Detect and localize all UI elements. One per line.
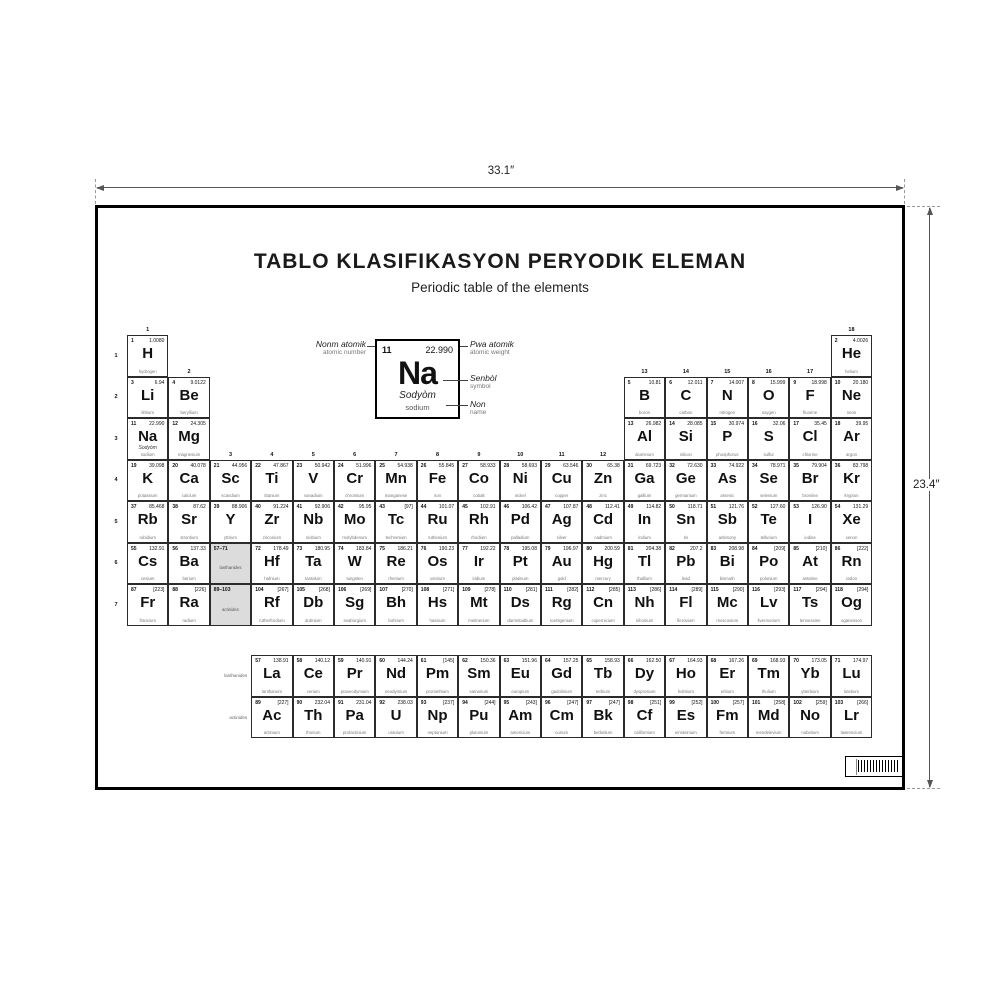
element-name: holmium [666, 689, 705, 694]
atomic-weight: 55.845 [439, 463, 454, 469]
atomic-weight: 28.085 [687, 421, 702, 427]
element-cell-kr: 3683.798Krkrypton [831, 460, 872, 502]
element-name: iridium [459, 576, 498, 581]
atomic-weight: 151.96 [522, 658, 537, 664]
element-cell-top: 67164.93 [666, 657, 705, 664]
atomic-number: 110 [504, 587, 512, 593]
atomic-number: 35 [793, 463, 799, 469]
element-cell-top: 101[258] [749, 699, 788, 706]
element-cell-top: 59140.91 [335, 657, 374, 664]
element-name: technetium [376, 535, 415, 540]
element-symbol: Hs [418, 594, 457, 611]
atomic-number: 13 [628, 421, 634, 427]
element-symbol: Dy [625, 665, 664, 682]
atomic-weight: 196.97 [563, 546, 578, 552]
atomic-weight: 118.71 [688, 504, 703, 510]
element-cell-ts: 117[294]Tstennessine [789, 584, 830, 626]
element-name: bismuth [708, 576, 747, 581]
element-cell-ga: 3169.723Gagallium [624, 460, 665, 502]
atomic-number: 40 [255, 504, 261, 510]
element-cell-top: 91231.04 [335, 699, 374, 706]
element-symbol: Fl [666, 594, 705, 611]
element-cell-os: 76190.23Ososmium [417, 543, 458, 585]
atomic-number: 75 [379, 546, 385, 552]
element-symbol: Li [128, 387, 167, 404]
atomic-weight: [247] [609, 700, 620, 706]
element-name: lawrencium [832, 730, 871, 735]
element-cell-au: 79196.97Augold [541, 543, 582, 585]
element-symbol: No [790, 707, 829, 724]
atomic-weight: 22.990 [149, 421, 164, 427]
atomic-weight: 207.2 [690, 546, 703, 552]
atomic-weight: 114.82 [646, 504, 661, 510]
element-cell-top: 1632.06 [749, 420, 788, 427]
atomic-weight: 121.76 [729, 504, 744, 510]
element-name: gadolinium [542, 689, 581, 694]
element-cell-lv: 116[293]Lvlivermorium [748, 584, 789, 626]
element-cell-top: 98[251] [625, 699, 664, 706]
atomic-number: 34 [752, 463, 758, 469]
group-number-1: 1 [127, 326, 168, 334]
element-cell-ag: 47107.87Agsilver [541, 501, 582, 543]
atomic-weight: 35.45 [814, 421, 827, 427]
element-symbol: Y [211, 511, 250, 528]
element-cell-top: 57138.91 [252, 657, 291, 664]
atomic-weight: [286] [650, 587, 661, 593]
atomic-weight: 178.49 [273, 546, 288, 552]
element-cell-top: 94[244] [459, 699, 498, 706]
element-cell-cu: 2963.546Cucopper [541, 460, 582, 502]
element-name: sodium [128, 452, 167, 457]
element-symbol: C [666, 387, 705, 404]
element-cell-top: 2963.546 [542, 462, 581, 469]
element-symbol: Db [294, 594, 333, 611]
element-cell-cl: 1735.45Clchlorine [789, 418, 830, 460]
element-cell-top: 93[237] [418, 699, 457, 706]
element-cell-cf: 98[251]Cfcalifornium [624, 697, 665, 739]
element-cell-c: 612.011Ccarbon [665, 377, 706, 419]
element-cell-s: 1632.06Ssulfur [748, 418, 789, 460]
element-cell-ni: 2858.693Ninickel [500, 460, 541, 502]
element-cell-top: 108[271] [418, 586, 457, 593]
group-number-5: 5 [293, 451, 334, 459]
period-number-2: 2 [110, 377, 122, 419]
element-cell-he: 24.0026Hehelium [831, 335, 872, 377]
element-name: helium [832, 369, 871, 374]
element-cell-top: 1735.45 [790, 420, 829, 427]
atomic-number: 4 [172, 380, 175, 386]
element-cell-at: 85[210]Atastatine [789, 543, 830, 585]
element-cell-la: 57138.91Lalanthanum [251, 655, 292, 697]
element-name: iodine [790, 535, 829, 540]
element-symbol: Pb [666, 553, 705, 570]
atomic-number: 89 [255, 700, 261, 706]
atomic-weight: 30.974 [729, 421, 744, 427]
element-symbol: Zr [252, 511, 291, 528]
element-symbol: Cn [583, 594, 622, 611]
element-cell-top: 66162.50 [625, 657, 664, 664]
element-symbol: Cu [542, 470, 581, 487]
atomic-weight: [278] [484, 587, 495, 593]
element-name: copper [542, 493, 581, 498]
element-name: rhenium [376, 576, 415, 581]
atomic-number: 88 [172, 587, 178, 593]
element-cell-sn: 50118.71Sntin [665, 501, 706, 543]
element-cell-top: 4295.95 [335, 503, 374, 510]
element-name: protactinium [335, 730, 374, 735]
element-cell-cr: 2451.996Crchromium [334, 460, 375, 502]
element-name: dubnium [294, 618, 333, 623]
atomic-number: 108 [421, 587, 429, 593]
element-symbol: Pd [501, 511, 540, 528]
element-symbol: Cf [625, 707, 664, 724]
arrow-down-icon [927, 780, 933, 788]
element-cell-i: 53126.90Iiodine [789, 501, 830, 543]
element-cell-yb: 70173.05Ybytterbium [789, 655, 830, 697]
atomic-weight: 158.93 [604, 658, 619, 664]
element-cell-mn: 2554.938Mnmanganese [375, 460, 416, 502]
group-number-6: 6 [334, 451, 375, 459]
atomic-weight: 87.62 [193, 504, 206, 510]
element-cell-top: 46106.42 [501, 503, 540, 510]
element-cell-top: 102[259] [790, 699, 829, 706]
element-cell-top: 3374.922 [708, 462, 747, 469]
element-cell-top: 2040.078 [169, 462, 208, 469]
element-cell-es: 99[252]Eseinsteinium [665, 697, 706, 739]
atomic-weight: 63.546 [563, 463, 578, 469]
element-name: scandium [211, 493, 250, 498]
atomic-weight: [210] [816, 546, 827, 552]
atomic-weight: 102.91 [480, 504, 495, 510]
height-dimension-label: 23.4″ [910, 479, 942, 491]
element-symbol: La [252, 665, 291, 682]
atomic-number: 17 [793, 421, 799, 427]
element-name: beryllium [169, 410, 208, 415]
atomic-number: 24 [338, 463, 344, 469]
element-name: ruthenium [418, 535, 457, 540]
element-name: carbon [666, 410, 705, 415]
element-cell-top: 51121.76 [708, 503, 747, 510]
element-cell-pb: 82207.2Pblead [665, 543, 706, 585]
element-name: plutonium [459, 730, 498, 735]
atomic-weight: [294] [857, 587, 868, 593]
element-cell-gd: 64157.25Gdgadolinium [541, 655, 582, 697]
group-number-17: 17 [789, 368, 830, 376]
element-name: strontium [169, 535, 208, 540]
extension-line-right-bottom [907, 788, 940, 789]
element-cell-se: 3478.971Seselenium [748, 460, 789, 502]
atomic-weight: 92.906 [315, 504, 330, 510]
atomic-number: 71 [835, 658, 841, 664]
element-cell-tl: 81204.38Tlthallium [624, 543, 665, 585]
atomic-number: 69 [752, 658, 758, 664]
element-cell-ds: 110[281]Dsdarmstadtium [500, 584, 541, 626]
element-cell-sc: 2144.956Scscandium [210, 460, 251, 502]
atomic-weight: [270] [402, 587, 413, 593]
element-symbol: Cm [542, 707, 581, 724]
period-number-6: 6 [110, 543, 122, 585]
element-cell-no: 102[259]Nonobelium [789, 697, 830, 739]
element-name: platinum [501, 576, 540, 581]
group-number-13: 13 [624, 368, 665, 376]
element-cell-top: 64157.25 [542, 657, 581, 664]
element-name: magnesium [169, 452, 208, 457]
atomic-number: 36 [835, 463, 841, 469]
element-cell-top: 117[294] [790, 586, 829, 593]
atomic-weight: 192.22 [480, 546, 495, 552]
element-name: molybdenum [335, 535, 374, 540]
element-symbol: Pa [335, 707, 374, 724]
atomic-weight: [267] [277, 587, 288, 593]
atomic-number: 49 [628, 504, 634, 510]
element-cell-top: 84[209] [749, 545, 788, 552]
element-cell-pm: 61[145]Pmpromethium [417, 655, 458, 697]
element-symbol: Ir [459, 553, 498, 570]
atomic-number: 27 [462, 463, 468, 469]
atomic-weight: 54.938 [397, 463, 412, 469]
element-cell-top: 118[294] [832, 586, 871, 593]
element-cell-top: 78195.08 [501, 545, 540, 552]
element-name: osmium [418, 576, 457, 581]
width-dimension-label: 33.1″ [468, 165, 534, 177]
atomic-weight: [289] [691, 587, 702, 593]
element-cell-top: 52127.60 [749, 503, 788, 510]
arrow-right-icon [896, 185, 904, 191]
atomic-weight: 106.42 [522, 504, 537, 510]
atomic-number: 103 [835, 700, 843, 706]
element-cell-top: 107[270] [376, 586, 415, 593]
element-symbol: Ds [501, 594, 540, 611]
element-name: chlorine [790, 452, 829, 457]
element-name: radon [832, 576, 871, 581]
element-cell-top: 1530.974 [708, 420, 747, 427]
fblock-row-label-lanthanides: lanthanides [183, 655, 247, 697]
element-cell-ce: 58140.12Cecerium [293, 655, 334, 697]
atomic-number: 63 [504, 658, 510, 664]
element-cell-top: 612.011 [666, 379, 705, 386]
element-cell-top: 49114.82 [625, 503, 664, 510]
element-symbol: Sm [459, 665, 498, 682]
atomic-number: 77 [462, 546, 468, 552]
element-cell-top: 95[243] [501, 699, 540, 706]
element-symbol: F [790, 387, 829, 404]
element-symbol: P [708, 428, 747, 445]
element-cell-top: 11.0080 [128, 337, 167, 344]
element-cell-tb: 65158.93Tbterbium [582, 655, 623, 697]
element-cell-in: 49114.82Inindium [624, 501, 665, 543]
atomic-number: 91 [338, 700, 344, 706]
element-cell-top: 3065.38 [583, 462, 622, 469]
element-cell-top: 100[257] [708, 699, 747, 706]
element-name: flerovium [666, 618, 705, 623]
element-cell-w: 74183.84Wtungsten [334, 543, 375, 585]
element-name: tennessine [790, 618, 829, 623]
atomic-number: 62 [462, 658, 468, 664]
atomic-number: 97 [586, 700, 592, 706]
element-cell-top: 81204.38 [625, 545, 664, 552]
atomic-weight: 183.84 [356, 546, 371, 552]
element-cell-top: 1122.990 [128, 420, 167, 427]
element-symbol: Ga [625, 470, 664, 487]
element-cell-top: 97[247] [583, 699, 622, 706]
element-cell-top: 88[226] [169, 586, 208, 593]
element-symbol: Ag [542, 511, 581, 528]
element-cell-top: 1020.180 [832, 379, 871, 386]
element-cell-top: 73180.95 [294, 545, 333, 552]
element-name: zirconium [252, 535, 291, 540]
atomic-number: 5 [628, 380, 631, 386]
element-cell-top: 114[289] [666, 586, 705, 593]
atomic-weight: 58.693 [522, 463, 537, 469]
element-name: copernicium [583, 618, 622, 623]
element-cell-top: 3887.62 [169, 503, 208, 510]
element-name: bohrium [376, 618, 415, 623]
element-cell-top: 3683.798 [832, 462, 871, 469]
atomic-weight: 18.998 [811, 380, 826, 386]
element-cell-fm: 100[257]Fmfermium [707, 697, 748, 739]
element-cell-lr: 103[266]Lrlawrencium [831, 697, 872, 739]
atomic-number: 53 [793, 504, 799, 510]
element-cell-top: 68167.26 [708, 657, 747, 664]
element-symbol: Lv [749, 594, 788, 611]
element-cell-top: 58140.12 [294, 657, 333, 664]
element-cell-top: 1326.982 [625, 420, 664, 427]
element-symbol: V [294, 470, 333, 487]
element-name: nickel [501, 493, 540, 498]
element-symbol: Kr [832, 470, 871, 487]
element-cell-top: 43[97] [376, 503, 415, 510]
element-cell-top: 71174.97 [832, 657, 871, 664]
element-symbol: Ba [169, 553, 208, 570]
atomic-weight: 50.942 [315, 463, 330, 469]
element-name: zinc [583, 493, 622, 498]
element-symbol: Tb [583, 665, 622, 682]
atomic-weight: 15.999 [770, 380, 785, 386]
element-name: aluminum [625, 452, 664, 457]
element-name: rutherfordium [252, 618, 291, 623]
atomic-number: 116 [752, 587, 760, 593]
atomic-number: 30 [586, 463, 592, 469]
element-cell-top: 75186.21 [376, 545, 415, 552]
element-cell-top: 113[286] [625, 586, 664, 593]
atomic-number: 95 [504, 700, 510, 706]
element-cell-hf: 72178.49Hfhafnium [251, 543, 292, 585]
element-symbol: Pt [501, 553, 540, 570]
element-symbol: Mg [169, 428, 208, 445]
atomic-number: 47 [545, 504, 551, 510]
element-cell-top: 63151.96 [501, 657, 540, 664]
element-cell-mg: 1224.305Mgmagnesium [168, 418, 209, 460]
element-name: niobium [294, 535, 333, 540]
element-symbol: Fe [418, 470, 457, 487]
element-name: arsenic [708, 493, 747, 498]
element-symbol: Au [542, 553, 581, 570]
element-cell-am: 95[243]Amamericium [500, 697, 541, 739]
element-cell-re: 75186.21Rerhenium [375, 543, 416, 585]
atomic-weight: 112.41 [605, 504, 620, 510]
atomic-weight: 4.0026 [853, 338, 868, 344]
atomic-number: 105 [297, 587, 305, 593]
element-cell-top: 3579.904 [790, 462, 829, 469]
element-symbol: Si [666, 428, 705, 445]
element-symbol: W [335, 553, 374, 570]
element-symbol: Mo [335, 511, 374, 528]
element-symbol: Er [708, 665, 747, 682]
element-name: lutetium [832, 689, 871, 694]
element-name: moscovium [708, 618, 747, 623]
element-cell-ti: 2247.867Tititanium [251, 460, 292, 502]
element-cell-mt: 109[278]Mtmeitnerium [458, 584, 499, 626]
atomic-number: 74 [338, 546, 344, 552]
element-name: bromine [790, 493, 829, 498]
element-name: tungsten [335, 576, 374, 581]
element-cell-top: 115[290] [708, 586, 747, 593]
element-symbol: Bh [376, 594, 415, 611]
atomic-weight: 157.25 [563, 658, 578, 664]
element-symbol: Sc [211, 470, 250, 487]
atomic-weight: [285] [609, 587, 620, 593]
element-symbol: Ts [790, 594, 829, 611]
element-name: vanadium [294, 493, 333, 498]
placeholder-cell-lanthanides: 57–71lanthanides [210, 543, 251, 585]
atomic-weight: [227] [277, 700, 288, 706]
element-symbol: Gd [542, 665, 581, 682]
atomic-weight: [271] [443, 587, 454, 593]
atomic-number: 16 [752, 421, 758, 427]
group-number-12: 12 [582, 451, 623, 459]
element-symbol: Cs [128, 553, 167, 570]
atomic-number: 67 [669, 658, 675, 664]
element-cell-top: 3169.723 [625, 462, 664, 469]
element-name: rhodium [459, 535, 498, 540]
element-symbol: Sb [708, 511, 747, 528]
element-cell-top: 105[268] [294, 586, 333, 593]
element-name: seaborgium [335, 618, 374, 623]
atomic-weight: 95.95 [359, 504, 372, 510]
element-cell-top: 70173.05 [790, 657, 829, 664]
element-symbol: Rh [459, 511, 498, 528]
atomic-number: 100 [711, 700, 719, 706]
element-name: roentgenium [542, 618, 581, 623]
atomic-weight: [243] [526, 700, 537, 706]
element-name: erbium [708, 689, 747, 694]
element-name: einsteinium [666, 730, 705, 735]
element-name: manganese [376, 493, 415, 498]
barcode [845, 756, 903, 777]
element-symbol: Hf [252, 553, 291, 570]
element-symbol: Os [418, 553, 457, 570]
atomic-number: 10 [835, 380, 841, 386]
atomic-weight: 127.60 [770, 504, 785, 510]
element-cell-sr: 3887.62Srstrontium [168, 501, 209, 543]
atomic-weight: 91.224 [273, 504, 288, 510]
element-name: actinium [252, 730, 291, 735]
element-symbol: Rg [542, 594, 581, 611]
atomic-number: 107 [379, 587, 387, 593]
element-name: oganesson [832, 618, 871, 623]
element-name: oxygen [749, 410, 788, 415]
element-cell-ba: 56137.33Babarium [168, 543, 209, 585]
element-cell-top: 714.007 [708, 379, 747, 386]
element-cell-k: 1939.098Kpotassium [127, 460, 168, 502]
element-cell-fe: 2655.845Feiron [417, 460, 458, 502]
element-name: cadmium [583, 535, 622, 540]
atomic-number: 2 [835, 338, 838, 344]
element-cell-top: 110[281] [501, 586, 540, 593]
period-number-3: 3 [110, 418, 122, 460]
element-name: phosphorus [708, 452, 747, 457]
element-cell-top: 50118.71 [666, 503, 705, 510]
